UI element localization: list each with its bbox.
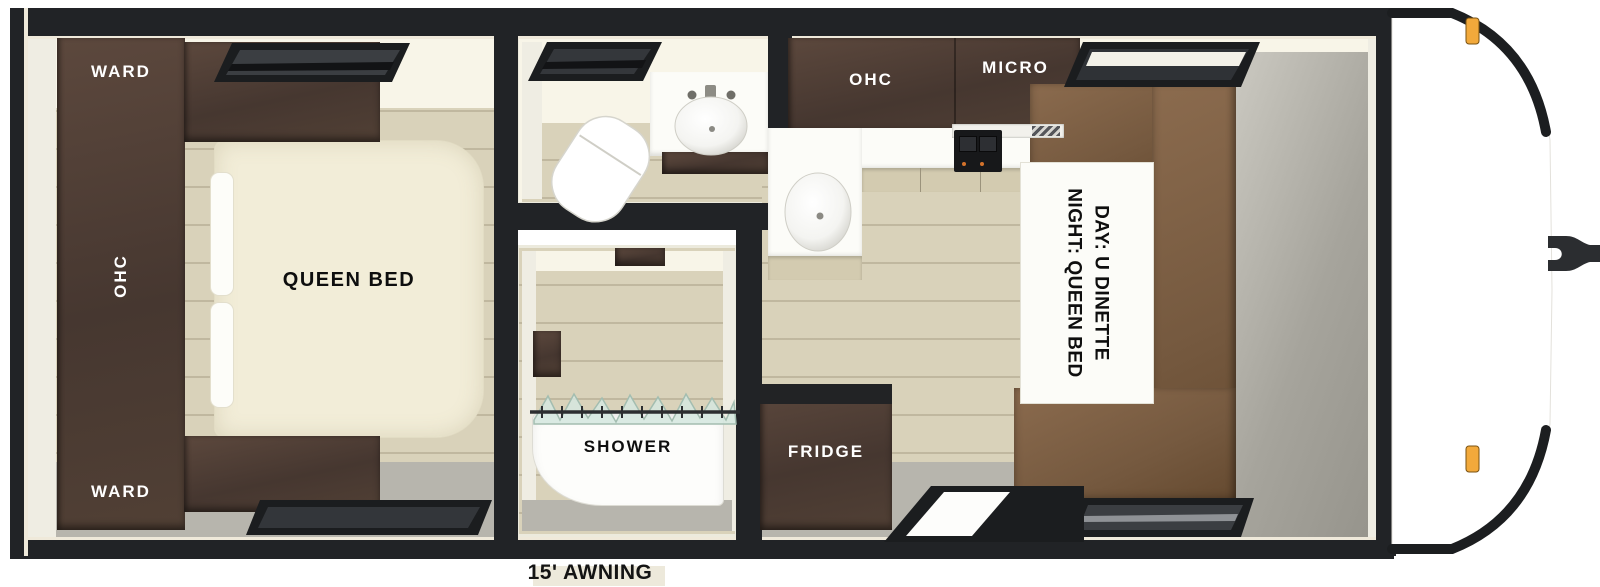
fridge-label: FRIDGE (760, 442, 892, 462)
bathroom-sink-counter (650, 72, 768, 156)
shower-skylight (615, 248, 665, 266)
micro-label: MICRO (958, 58, 1073, 78)
cooktop-icon (954, 130, 1002, 172)
bathroom-left-wall (522, 42, 542, 199)
queen-bed: QUEEN BED (214, 140, 484, 438)
bed-head-overhead-cabinet (184, 42, 380, 142)
awning-label: 15' AWNING (450, 561, 730, 585)
trailer-front-cap (1392, 10, 1600, 552)
queen-bed-label: QUEEN BED (215, 269, 483, 292)
bedroom-left-wall (28, 36, 56, 537)
ward-bottom-label: WARD (57, 482, 185, 502)
dinette-table: DAY: U DINETTE NIGHT: QUEEN BED (1020, 162, 1154, 404)
dinette-night-label: NIGHT: QUEEN BED (1060, 188, 1087, 378)
wall-front-junction (1376, 8, 1396, 556)
shower-wall-cabinet (533, 331, 561, 377)
wall-top (10, 8, 1394, 39)
drawer-divider (920, 168, 921, 192)
rv-floorplan: QUEEN BED WARD OHC WARD SHOWER OHC MICRO (0, 0, 1600, 587)
wall-shower-kitchen (736, 228, 762, 556)
knob-dot-left (962, 162, 966, 166)
bed-pillow-top (210, 172, 234, 296)
vent-grille (1032, 126, 1060, 136)
bedroom-ohc-label: OHC (111, 226, 131, 326)
wall-left (10, 8, 28, 556)
knob-dot-right (980, 162, 984, 166)
shower-tub: SHOWER (532, 412, 724, 506)
wall-bedroom-bath (494, 8, 518, 556)
shower-right-wall (723, 251, 735, 531)
shower-label: SHOWER (533, 437, 723, 457)
kitchen-base-cabinets (862, 168, 1038, 192)
under-sink-cabinet (768, 256, 862, 280)
fridge: FRIDGE (760, 384, 892, 530)
cabinet-seam (954, 38, 956, 135)
wardrobe-cabinet-column: WARD OHC WARD (57, 38, 185, 530)
burner-left (959, 136, 977, 152)
bathroom-vanity (662, 152, 768, 174)
fridge-top-band (760, 384, 892, 404)
dinette-table-note: DAY: U DINETTE NIGHT: QUEEN BED (1060, 188, 1113, 378)
front-storage-area (1236, 52, 1372, 537)
marker-light-top-icon (1466, 18, 1479, 44)
wall-bottom (10, 537, 1394, 559)
bed-pillow-bottom (210, 302, 234, 408)
hitch-coupler-icon (1548, 236, 1600, 271)
wall-bath-shower (494, 203, 792, 230)
kitchen-ohc-label: OHC (796, 70, 946, 90)
front-wall-liner (1368, 36, 1376, 537)
ward-top-label: WARD (57, 62, 185, 82)
burner-right (979, 136, 997, 152)
bed-foot-overhead-cabinet (184, 436, 380, 512)
marker-light-bottom-icon (1466, 446, 1479, 472)
dinette-bench-bottom (1014, 388, 1236, 504)
kitchen-sink-counter (768, 128, 862, 258)
shower-left-wall (522, 251, 536, 531)
dinette-day-label: DAY: U DINETTE (1087, 188, 1114, 378)
